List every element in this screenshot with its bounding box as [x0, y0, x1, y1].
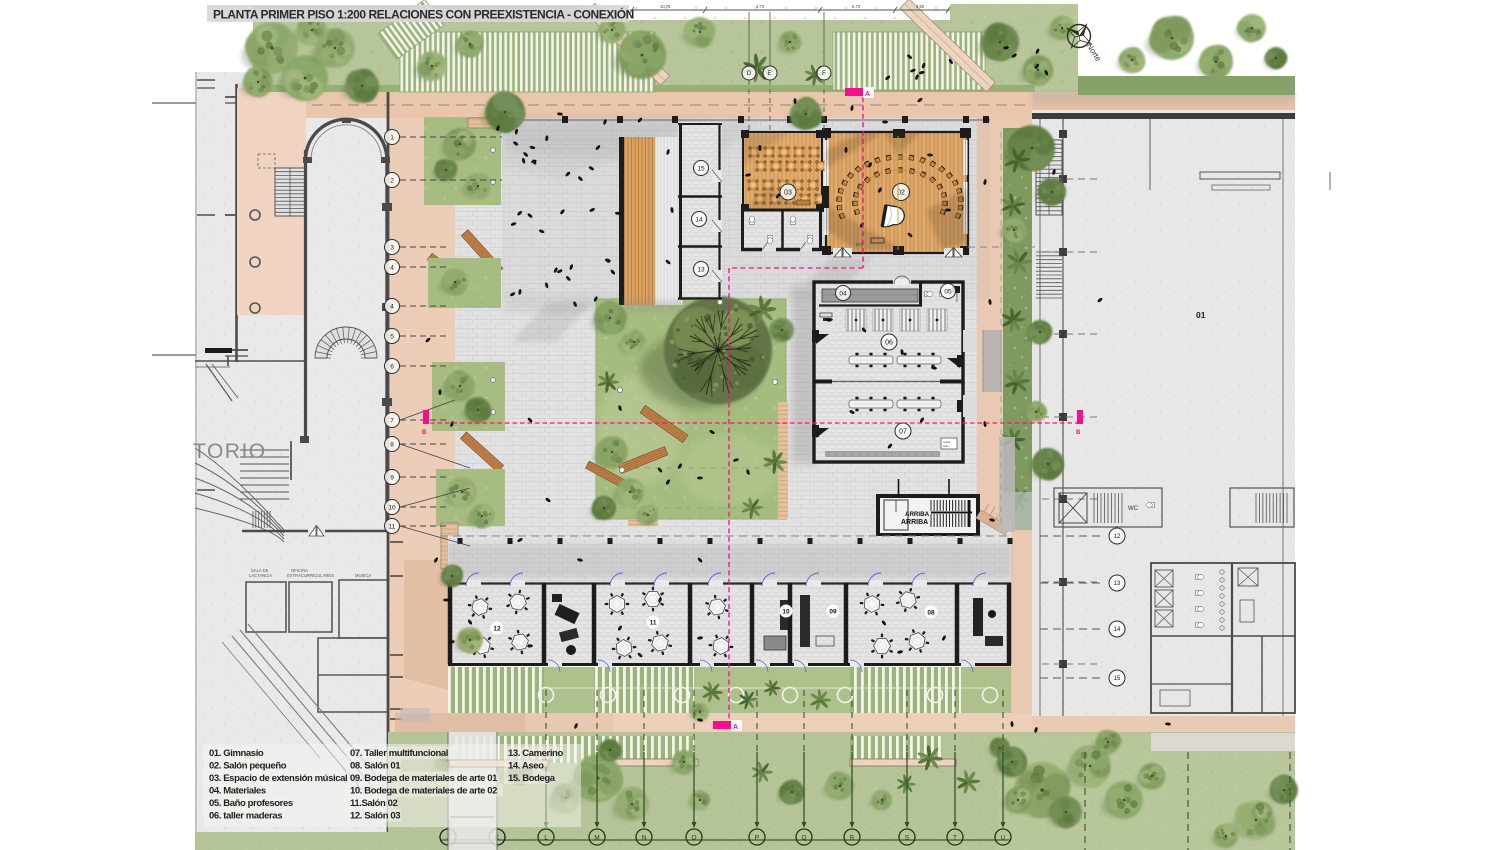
svg-text:02. Salón pequeño: 02. Salón pequeño [209, 761, 287, 772]
svg-text:7: 7 [390, 417, 394, 424]
svg-text:4.70: 4.70 [756, 4, 765, 9]
svg-text:9: 9 [390, 474, 394, 481]
svg-text:03: 03 [784, 190, 792, 197]
svg-text:05: 05 [944, 288, 952, 295]
svg-text:15: 15 [697, 165, 705, 172]
svg-text:S: S [905, 835, 910, 842]
svg-text:01. Gimnasio: 01. Gimnasio [209, 748, 264, 759]
svg-text:LACTANCIA: LACTANCIA [249, 573, 272, 578]
svg-text:MUSICA: MUSICA [355, 573, 371, 578]
svg-text:08. Salón 01: 08. Salón 01 [350, 761, 401, 772]
svg-text:B: B [1076, 430, 1081, 436]
svg-text:aseo: aseo [943, 445, 949, 448]
svg-text:A: A [865, 91, 870, 98]
svg-text:06: 06 [885, 340, 893, 347]
svg-text:14: 14 [695, 216, 703, 223]
svg-text:07: 07 [899, 429, 907, 436]
svg-text:15: 15 [1114, 676, 1121, 682]
svg-text:12. Salón 03: 12. Salón 03 [350, 811, 400, 822]
svg-text:L: L [544, 835, 548, 842]
svg-text:cuarto: cuarto [943, 440, 951, 444]
svg-text:Q: Q [801, 835, 806, 842]
svg-text:R: R [850, 835, 855, 842]
svg-text:4: 4 [390, 264, 394, 271]
svg-text:(+): (+) [856, 242, 863, 248]
svg-text:D: D [747, 71, 752, 77]
svg-text:ARRIBA: ARRIBA [901, 519, 928, 526]
svg-text:12: 12 [493, 626, 501, 633]
svg-text:B: B [422, 430, 427, 436]
svg-text:06. taller maderas: 06. taller maderas [209, 811, 282, 822]
svg-text:09. Bodega de materiales de ar: 09. Bodega de materiales de arte 01 [350, 773, 498, 784]
svg-text:3: 3 [390, 244, 394, 251]
svg-text:T: T [953, 835, 957, 842]
svg-text:5: 5 [390, 333, 394, 340]
svg-text:10.78: 10.78 [660, 4, 671, 9]
svg-text:U: U [1001, 835, 1006, 842]
svg-text:13. Camerino: 13. Camerino [508, 748, 563, 759]
svg-text:2: 2 [390, 177, 394, 184]
svg-text:04. Materiales: 04. Materiales [209, 786, 266, 797]
svg-text:PLANTA PRIMER PISO 1:200 RELAC: PLANTA PRIMER PISO 1:200 RELACIONES CON … [213, 7, 634, 22]
svg-text:11: 11 [389, 523, 396, 530]
svg-text:E': E' [767, 71, 772, 77]
svg-text:8: 8 [390, 441, 394, 448]
svg-text:12: 12 [1114, 534, 1121, 540]
svg-text:14. Aseo: 14. Aseo [508, 761, 544, 772]
svg-text:6.70: 6.70 [852, 4, 861, 9]
svg-text:14: 14 [1114, 627, 1121, 633]
svg-text:F: F [822, 71, 826, 77]
svg-text:13: 13 [1114, 581, 1121, 587]
svg-text:03. Espacio de extensión músic: 03. Espacio de extensión músical [209, 773, 347, 784]
svg-text:11.Salón 02: 11.Salón 02 [350, 798, 397, 809]
svg-text:08: 08 [927, 610, 935, 617]
svg-text:15. Bodega: 15. Bodega [508, 773, 556, 784]
svg-text:05. Baño profesores: 05. Baño profesores [209, 798, 293, 809]
svg-text:07. Taller multifuncional: 07. Taller multifuncional [350, 748, 448, 759]
svg-text:6: 6 [390, 363, 394, 370]
svg-text:P: P [755, 835, 759, 842]
svg-text:EXTRACURRICULARES: EXTRACURRICULARES [287, 573, 334, 578]
svg-text:10: 10 [782, 609, 790, 616]
svg-text:WC: WC [1128, 506, 1139, 512]
svg-text:4.50: 4.50 [916, 4, 925, 9]
svg-text:O: O [691, 835, 696, 842]
svg-text:01: 01 [1196, 310, 1206, 320]
svg-text:10. Bodega de materiales de a: 10. Bodega de materiales de arte 02 [350, 786, 497, 797]
svg-text:11: 11 [650, 620, 657, 627]
svg-text:ARRIBA: ARRIBA [905, 511, 930, 518]
svg-text:M: M [594, 835, 599, 842]
svg-text:09: 09 [829, 609, 837, 616]
svg-text:N: N [642, 835, 647, 842]
svg-text:10: 10 [388, 504, 396, 511]
svg-text:A: A [733, 724, 738, 731]
svg-text:13: 13 [697, 266, 705, 273]
svg-text:TORIO: TORIO [193, 440, 267, 463]
svg-text:1: 1 [390, 134, 394, 141]
svg-text:4: 4 [390, 303, 394, 310]
svg-text:04: 04 [839, 290, 847, 297]
